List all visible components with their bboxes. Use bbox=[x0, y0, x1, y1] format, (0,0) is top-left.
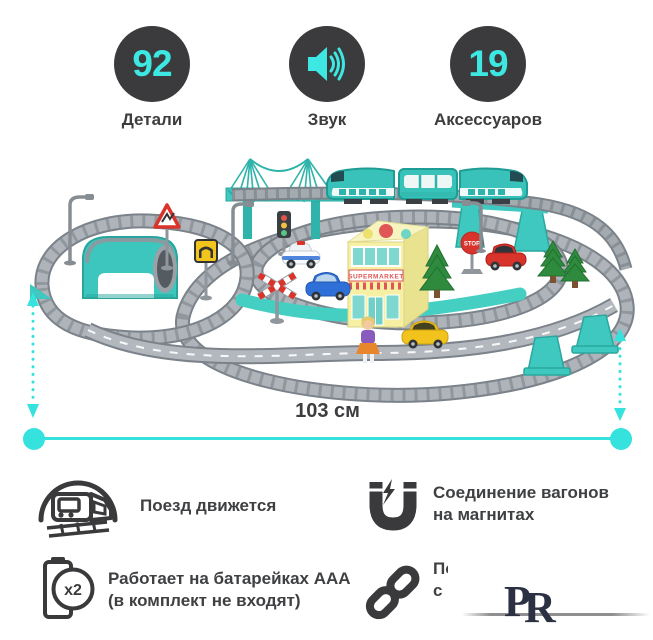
battery-icon: x2 bbox=[42, 557, 96, 621]
train-car-front bbox=[327, 169, 394, 200]
badge-parts-value: 92 bbox=[132, 43, 171, 85]
stop-sign-text: STOP bbox=[464, 242, 480, 248]
train bbox=[327, 169, 527, 205]
feature-magnet-text: Соединение вагонов на магнитах bbox=[433, 482, 643, 526]
badge-parts: 92 Детали bbox=[82, 26, 222, 130]
magnet-icon bbox=[367, 478, 419, 534]
train-car-rear bbox=[460, 169, 527, 200]
badge-accessories-circle: 19 bbox=[450, 26, 526, 102]
badge-sound-circle bbox=[289, 26, 365, 102]
feature-battery-line1: Работает на батарейках AAA bbox=[108, 568, 378, 590]
dimension-dot-right bbox=[610, 428, 632, 450]
chain-icon bbox=[362, 561, 424, 623]
badge-accessories-value: 19 bbox=[468, 43, 507, 85]
train-icon bbox=[33, 462, 123, 546]
train-car-middle bbox=[399, 169, 457, 199]
feature-battery-text: Работает на батарейках AAA (в комплект н… bbox=[108, 568, 378, 612]
badge-sound-label: Звук bbox=[257, 110, 397, 130]
badge-parts-label: Детали bbox=[82, 110, 222, 130]
badge-parts-circle: 92 bbox=[114, 26, 190, 102]
speaker-icon bbox=[304, 43, 350, 85]
product-photo-train-set: SUPERMARKET STOP bbox=[0, 147, 653, 413]
supermarket-building: SUPERMARKET bbox=[348, 221, 428, 327]
feature-battery-line2: (в комплект не входят) bbox=[108, 590, 378, 612]
badge-sound: Звук bbox=[257, 26, 397, 130]
feature-train-text: Поезд движется bbox=[140, 495, 276, 517]
supermarket-sign-text: SUPERMARKET bbox=[348, 274, 404, 281]
dimension-dot-left bbox=[23, 428, 45, 450]
watermark-logo: Р R bbox=[502, 578, 582, 630]
height-dimension-arrow-right bbox=[609, 327, 631, 422]
battery-count-text: x2 bbox=[64, 582, 82, 599]
watermark-letter-2: R bbox=[524, 583, 557, 630]
width-dimension-line bbox=[33, 437, 622, 440]
badge-accessories-label: Аксессуаров bbox=[418, 110, 558, 130]
feature-magnet-line2: на магнитах bbox=[433, 504, 643, 526]
width-dimension-label: 103 см bbox=[33, 400, 622, 423]
blue-car bbox=[306, 273, 350, 301]
height-dimension-arrow-left bbox=[22, 290, 44, 420]
badge-accessories: 19 Аксессуаров bbox=[418, 26, 558, 130]
feature-magnet-line1: Соединение вагонов bbox=[433, 482, 643, 504]
